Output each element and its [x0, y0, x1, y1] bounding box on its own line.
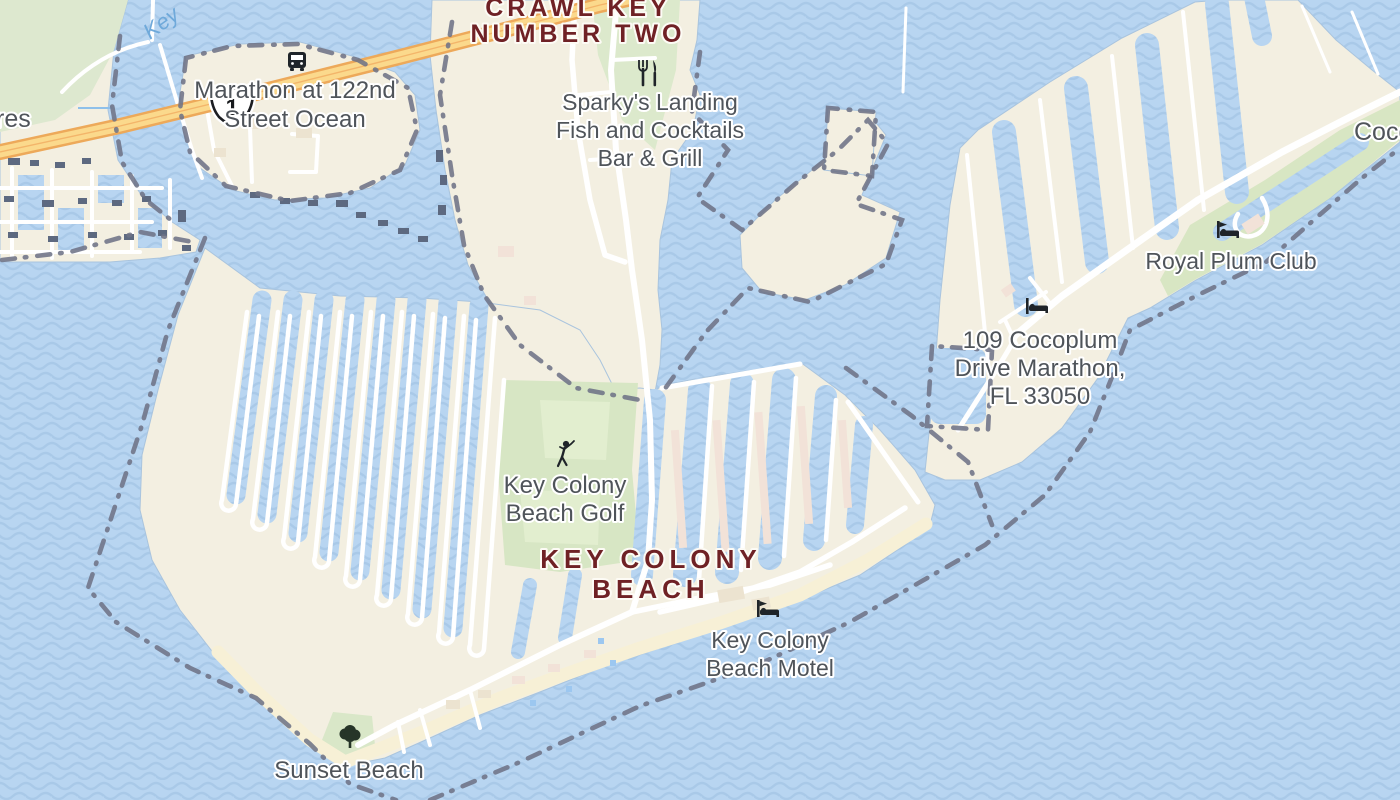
- map-canvas[interactable]: Key 1 Sparky's Landing Fish and Cocktail…: [0, 0, 1400, 800]
- canal: [1253, 0, 1262, 36]
- poi-label: Drive Marathon,: [955, 355, 1126, 382]
- poi-label: Fish and Cocktails: [556, 117, 744, 143]
- poi-label: Sparky's Landing: [562, 89, 738, 115]
- poi-label: 109 Cocoplum: [963, 327, 1118, 354]
- poi-label: Beach Motel: [706, 655, 834, 681]
- map-viewport[interactable]: Key 1 Sparky's Landing Fish and Cocktail…: [0, 0, 1400, 800]
- key-label: NUMBER TWO: [471, 20, 686, 48]
- city-label: BEACH: [592, 574, 709, 604]
- poi-label: Beach Golf: [506, 500, 625, 527]
- key-label: CRAWL KEY: [485, 0, 671, 22]
- canal: [58, 208, 84, 252]
- poi-label: Key Colony: [711, 627, 829, 653]
- clipped-label-left: res: [0, 105, 31, 133]
- key-label-crawl-key[interactable]: CRAWL KEY NUMBER TWO: [471, 0, 686, 48]
- canal: [814, 396, 826, 540]
- clipped-label-right: Coco: [1354, 118, 1400, 146]
- poi-label: Street Ocean: [224, 106, 365, 133]
- canal: [138, 208, 162, 248]
- poi-label: Marathon at 122nd: [194, 77, 395, 104]
- poi-label: Sunset Beach: [274, 757, 423, 784]
- poi-label: Royal Plum Club: [1145, 248, 1316, 274]
- city-label: KEY COLONY: [540, 544, 761, 574]
- golf-fairway: [540, 400, 610, 460]
- canal: [770, 380, 784, 558]
- canal: [565, 575, 575, 638]
- poi-label: Bar & Grill: [598, 145, 703, 171]
- poi-label: FL 33050: [990, 383, 1091, 410]
- canal: [855, 425, 864, 525]
- poi-label: Key Colony: [504, 472, 627, 499]
